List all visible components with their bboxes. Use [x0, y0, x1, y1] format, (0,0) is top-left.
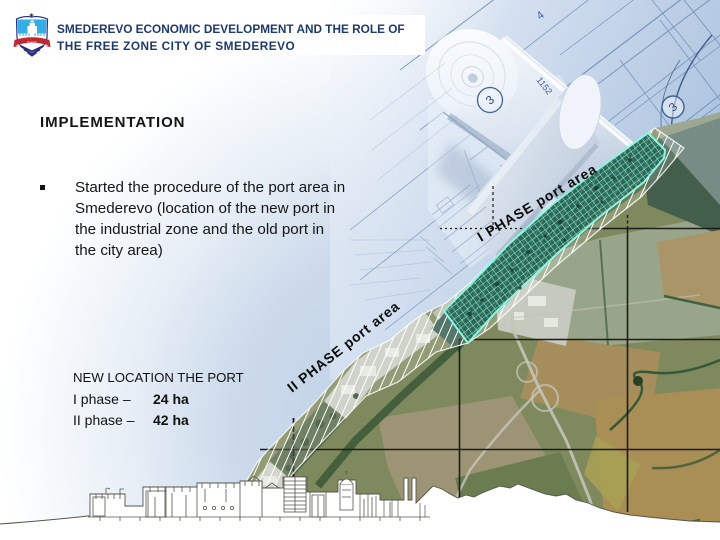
- svg-text:NEW LOCATION THE PORT: NEW LOCATION THE PORT: [73, 370, 244, 385]
- svg-text:IMPLEMENTATION: IMPLEMENTATION: [40, 114, 185, 131]
- svg-text:THE FREE ZONE CITY OF SMEDEREV: THE FREE ZONE CITY OF SMEDEREVO: [57, 39, 295, 53]
- svg-text:SMED: SMED: [27, 41, 38, 45]
- svg-text:SMEDEREVO ECONOMIC DEVELOPMENT: SMEDEREVO ECONOMIC DEVELOPMENT AND THE R…: [57, 22, 405, 36]
- svg-text:II phase –42 ha: II phase –42 ha: [73, 412, 189, 428]
